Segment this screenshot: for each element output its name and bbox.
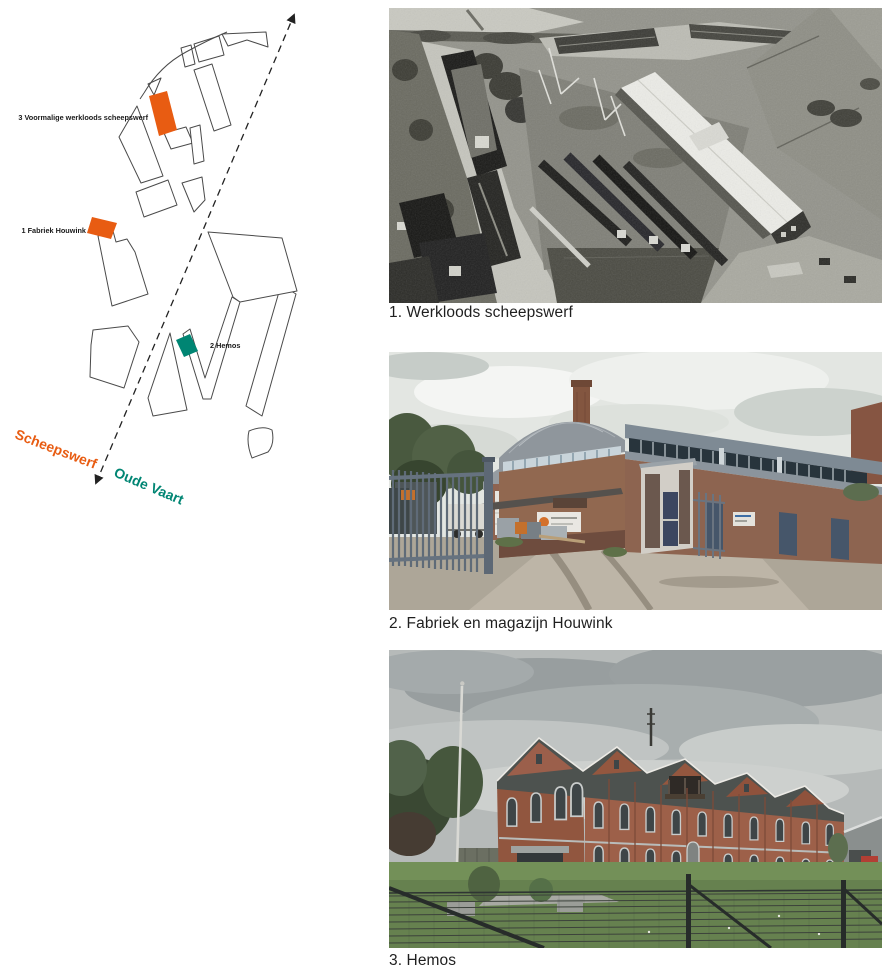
highlight-building-3 <box>149 91 177 136</box>
label-scheepswerf: Scheepswerf <box>13 426 100 472</box>
photo-werkloods-scheepswerf <box>389 8 882 303</box>
film-grain <box>389 8 882 303</box>
entrance-vestibule <box>639 458 697 554</box>
document-page: 3 Voormalige werkloods scheepswerf 1 Fab… <box>0 0 884 975</box>
caption-photo-2: 2. Fabriek en magazijn Houwink <box>389 613 882 634</box>
gate-post <box>484 460 493 574</box>
label-building-1: 1 Fabriek Houwink <box>22 226 87 235</box>
photo-hemos <box>389 650 882 948</box>
label-building-2: 2 Hemos <box>210 341 240 350</box>
site-map: 3 Voormalige werkloods scheepswerf 1 Fab… <box>0 0 320 510</box>
wall-sign <box>733 512 755 526</box>
balcony <box>665 776 705 799</box>
building-outlines <box>90 32 297 458</box>
label-oude-vaart: Oude Vaart <box>112 464 187 508</box>
door-blue-3 <box>831 518 849 560</box>
photo-fabriek-houwink <box>389 352 882 610</box>
label-building-3: 3 Voormalige werkloods scheepswerf <box>18 113 148 122</box>
caption-photo-1: 1. Werkloods scheepswerf <box>389 302 882 323</box>
caption-photo-3: 3. Hemos <box>389 950 882 971</box>
door-blue-2 <box>779 512 797 556</box>
